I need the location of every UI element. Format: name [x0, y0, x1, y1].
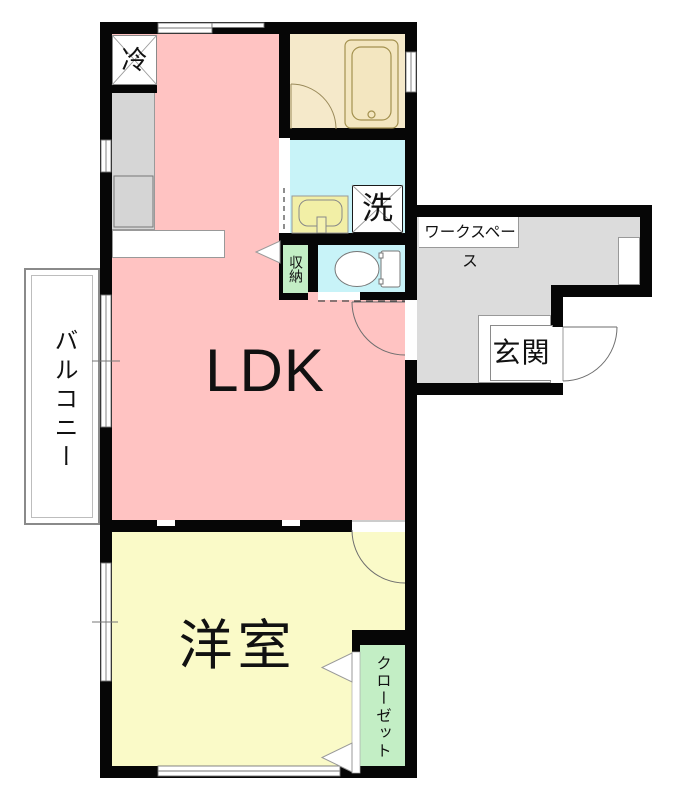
- entrance-label: 玄関: [490, 325, 553, 381]
- shoe-cabinet: [618, 237, 640, 285]
- refrigerator-label: 冷: [112, 35, 157, 85]
- wall-bottom: [100, 766, 417, 778]
- wall-top: [100, 22, 417, 34]
- wall-left: [100, 22, 112, 778]
- ldk-label: LDK: [170, 330, 360, 410]
- wall-ldk-western: [100, 520, 352, 532]
- wall-toilet-stub: [360, 292, 405, 300]
- room-bathroom: [290, 34, 405, 128]
- wall-storage-stub: [279, 293, 308, 300]
- wall-entrance-bottom: [417, 383, 563, 395]
- wall-workspace-right: [640, 205, 652, 297]
- wall-closet-top: [352, 630, 417, 645]
- western-room-label: 洋室: [145, 604, 330, 676]
- wall-fridge-stub: [100, 85, 157, 93]
- workspace-label: ワークスペース: [421, 218, 519, 247]
- storage-label: 収納: [283, 246, 308, 292]
- wall-wash-divider: [279, 233, 417, 245]
- wall-bath-divider: [279, 128, 417, 140]
- wall-workspace-step: [551, 285, 652, 297]
- washer-label: 洗: [352, 185, 403, 233]
- wall-closet-stub: [352, 630, 360, 654]
- entrance-door: [563, 327, 617, 381]
- floorplan: LDK 洋室 バルコニー ワークスペース 玄関 収納 クローゼット 冷 洗: [0, 0, 674, 800]
- kitchen-counter-strip: [112, 93, 155, 230]
- balcony-label: バルコニー: [45, 300, 81, 500]
- wall-workspace-top: [417, 205, 652, 217]
- wall-entrance-side: [551, 297, 563, 327]
- kitchen-counter: [112, 230, 225, 258]
- wall-bath-left: [279, 34, 290, 138]
- wall-storage-right: [308, 245, 318, 292]
- closet-label: クローゼット: [360, 648, 405, 766]
- room-toilet: [318, 245, 405, 292]
